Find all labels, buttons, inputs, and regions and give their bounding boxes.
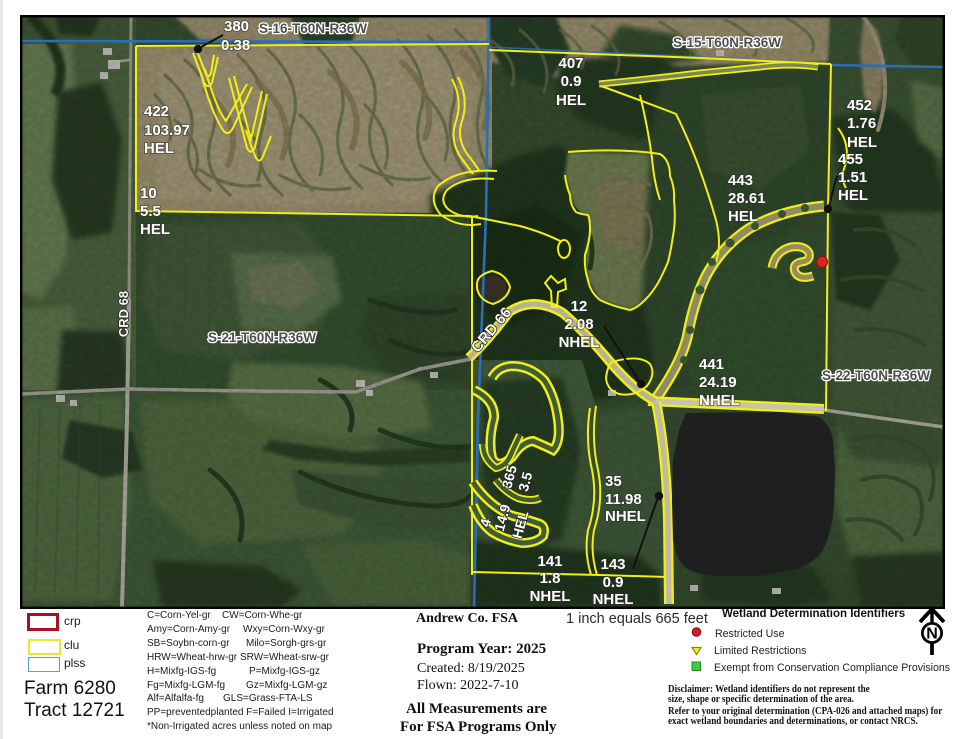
svg-text:HEL: HEL	[144, 140, 174, 157]
svg-text:143: 143	[600, 556, 625, 573]
svg-text:2.08: 2.08	[564, 316, 593, 333]
svg-text:103.97: 103.97	[144, 122, 190, 139]
svg-text:S-15-T60N-R36W: S-15-T60N-R36W	[673, 35, 781, 50]
svg-text:NHEL: NHEL	[593, 591, 634, 608]
svg-text:HEL: HEL	[556, 92, 586, 109]
svg-text:HEL: HEL	[847, 134, 877, 151]
svg-text:S-21-T60N-R36W: S-21-T60N-R36W	[208, 330, 316, 345]
svg-text:NHEL: NHEL	[605, 508, 646, 525]
svg-text:0.38: 0.38	[221, 37, 250, 54]
svg-text:24.19: 24.19	[699, 374, 737, 391]
svg-text:HEL: HEL	[838, 187, 868, 204]
svg-text:452: 452	[847, 97, 872, 114]
svg-text:407: 407	[558, 55, 583, 72]
svg-text:28.61: 28.61	[728, 190, 766, 207]
svg-text:HEL: HEL	[140, 221, 170, 238]
svg-text:5.5: 5.5	[140, 203, 161, 220]
svg-text:11.98: 11.98	[605, 491, 642, 508]
svg-text:0.9: 0.9	[603, 574, 624, 591]
svg-text:455: 455	[838, 151, 863, 168]
svg-text:441: 441	[699, 356, 724, 373]
svg-text:380: 380	[224, 18, 249, 35]
svg-text:S-16-T60N-R36W: S-16-T60N-R36W	[259, 21, 367, 36]
svg-text:HEL: HEL	[728, 208, 758, 225]
svg-text:N: N	[926, 626, 938, 643]
svg-text:1.8: 1.8	[540, 570, 561, 587]
svg-text:1.76: 1.76	[847, 115, 876, 132]
svg-text:35: 35	[605, 473, 622, 490]
svg-text:10: 10	[140, 185, 157, 202]
svg-text:0.9: 0.9	[561, 73, 582, 90]
svg-text:S-22-T60N-R36W: S-22-T60N-R36W	[822, 368, 930, 383]
svg-text:NHEL: NHEL	[530, 588, 571, 605]
svg-text:422: 422	[144, 103, 169, 120]
svg-text:NHEL: NHEL	[559, 334, 600, 351]
svg-text:443: 443	[728, 172, 753, 189]
svg-text:NHEL: NHEL	[699, 392, 740, 409]
svg-text:12: 12	[571, 298, 588, 315]
svg-text:1.51: 1.51	[838, 169, 867, 186]
svg-text:CRD 68: CRD 68	[116, 291, 131, 337]
svg-text:141: 141	[537, 553, 562, 570]
